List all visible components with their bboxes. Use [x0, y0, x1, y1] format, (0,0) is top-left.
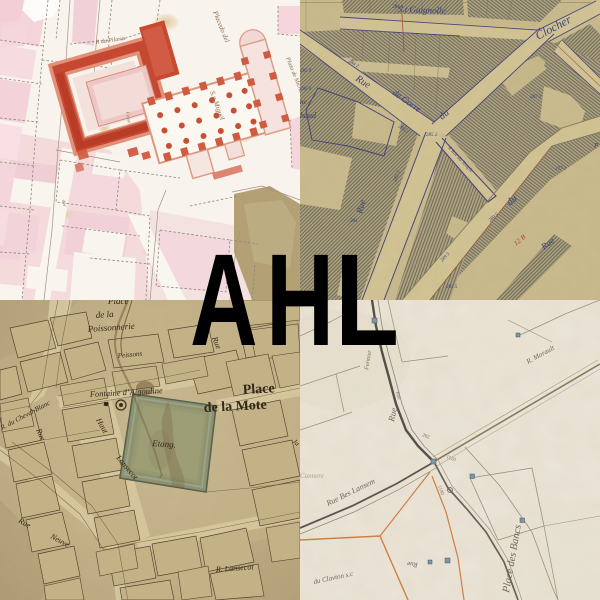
- svg-text:284 S: 284 S: [392, 5, 404, 10]
- svg-text:Place: Place: [242, 381, 275, 398]
- svg-text:286 0: 286 0: [300, 87, 312, 92]
- svg-text:277 1: 277 1: [555, 167, 566, 172]
- svg-text:287 2: 287 2: [530, 95, 542, 100]
- svg-text:283 5: 283 5: [446, 285, 458, 290]
- svg-text:de la: de la: [95, 309, 114, 320]
- svg-text:Place: Place: [107, 300, 129, 306]
- svg-text:Rue: Rue: [406, 560, 419, 569]
- svg-text:S.t Gaignolle: S.t Gaignolle: [398, 4, 446, 16]
- svg-text:Cannere: Cannere: [300, 472, 324, 480]
- svg-text:285 2: 285 2: [426, 133, 438, 138]
- svg-text:Etang.: Etang.: [151, 438, 176, 450]
- svg-text:ne: ne: [300, 98, 307, 106]
- svg-text:P: P: [593, 142, 599, 150]
- svg-text:285 4: 285 4: [300, 69, 312, 74]
- svg-text:284: 284: [350, 219, 358, 224]
- svg-text:haud: haud: [300, 111, 317, 120]
